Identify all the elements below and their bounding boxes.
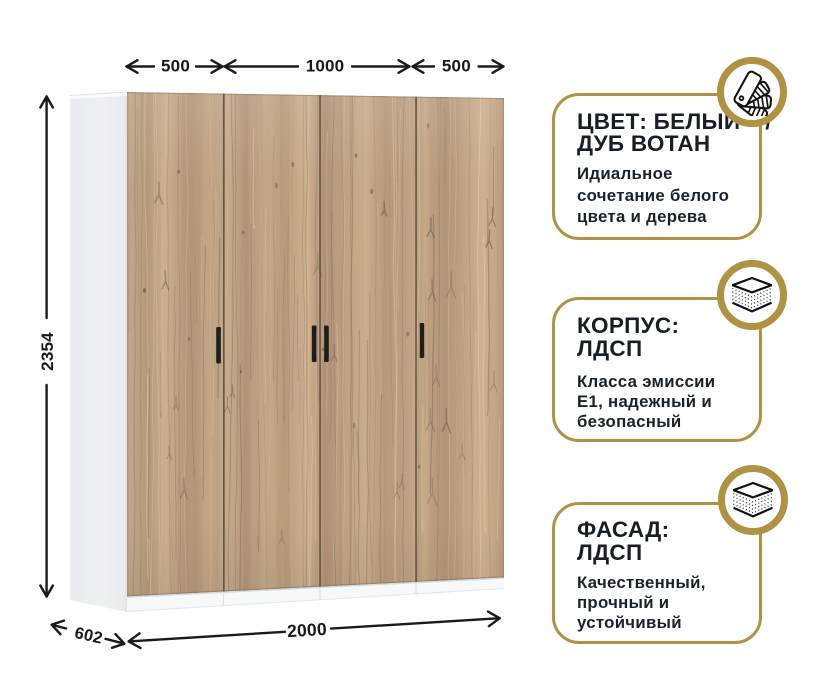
svg-text:2354: 2354 xyxy=(38,332,57,371)
svg-text:1000: 1000 xyxy=(306,56,345,75)
svg-text:500: 500 xyxy=(161,56,190,75)
svg-text:602: 602 xyxy=(73,624,104,648)
svg-text:500: 500 xyxy=(442,56,471,75)
svg-text:2000: 2000 xyxy=(287,619,328,641)
